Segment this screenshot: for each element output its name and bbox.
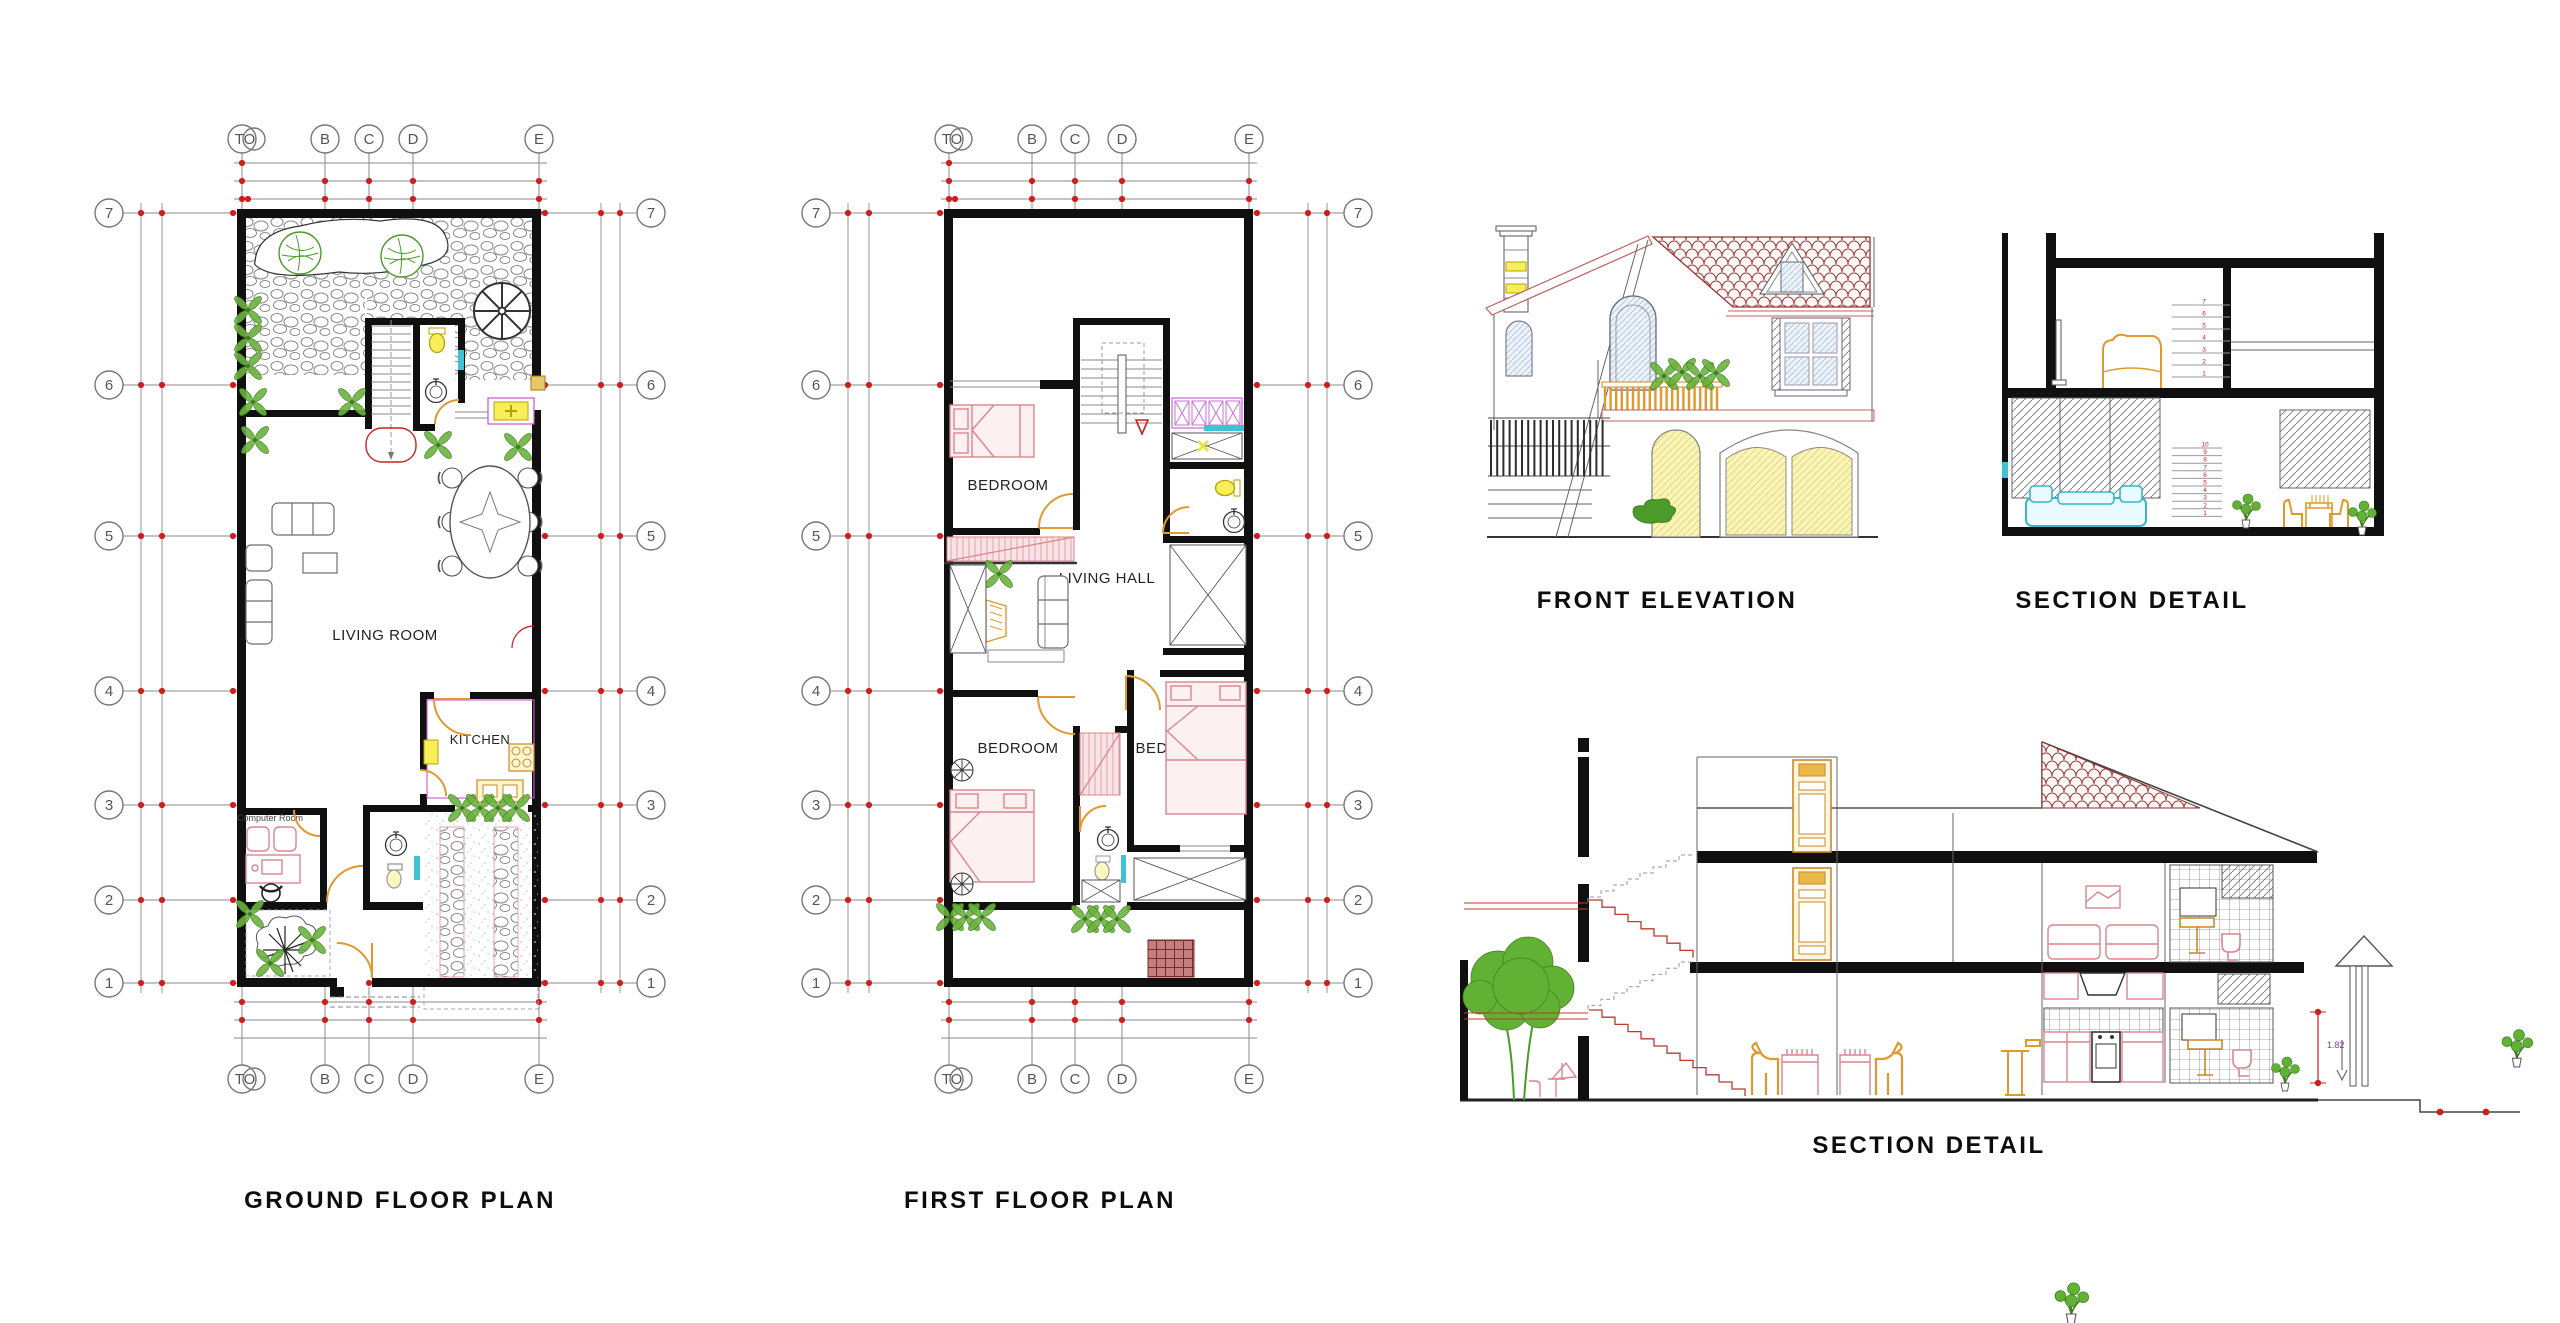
water-tank-tower <box>2336 936 2392 1086</box>
counter-block <box>424 740 438 764</box>
plant-icon <box>2502 1030 2533 1067</box>
grid-bubble: C <box>1061 125 1089 153</box>
grid-bubble-label: 3 <box>647 797 655 814</box>
door-arc <box>420 770 446 796</box>
grid-bubble: 3 <box>802 791 830 819</box>
plant-icon <box>2233 494 2261 528</box>
grid-bubble: 3 <box>95 791 123 819</box>
grid-bubble: 2 <box>95 886 123 914</box>
stair-step-number: 9 <box>2203 449 2207 456</box>
window-4pane <box>1772 318 1850 396</box>
entry-step <box>330 987 344 997</box>
grid-bubble: B <box>311 1065 339 1093</box>
floor-band <box>1602 410 1874 421</box>
stove-icon <box>509 744 534 771</box>
arched-window <box>1506 321 1532 376</box>
ceiling-fan-icon <box>951 759 973 781</box>
grid-bubble: 1 <box>637 969 665 997</box>
room-label: BEDROOM <box>977 740 1058 757</box>
tiled-roof <box>2042 742 2200 808</box>
toilet-icon <box>387 864 402 888</box>
arched-window <box>1610 296 1656 390</box>
stair-step-number: 10 <box>2201 442 2209 449</box>
entrance-door-arc <box>337 943 372 978</box>
grid-bubble-label: 1 <box>1354 975 1362 992</box>
side-gate-block <box>531 376 545 390</box>
stair-step-number: 6 <box>2202 311 2206 318</box>
grid-bubble-label: C <box>1070 131 1081 148</box>
sink-icon <box>386 832 407 856</box>
grid-bubble: 7 <box>95 199 123 227</box>
storage-box <box>1172 433 1242 459</box>
grid-bubble-label: 4 <box>812 683 820 700</box>
stairs-upper: 7654321 <box>2172 299 2230 378</box>
cabinet <box>986 600 1006 642</box>
grid-bubble-label: 3 <box>812 797 820 814</box>
first-floor-title: FIRST FLOOR PLAN <box>904 1187 1176 1214</box>
grid-bubble: E <box>1235 125 1263 153</box>
grid-bubble: E <box>525 1065 553 1093</box>
grid-bubble-label: E <box>1244 1071 1254 1088</box>
dressing-closet <box>1134 858 1246 900</box>
grid-bubble: B <box>1018 1065 1046 1093</box>
grid-bubble: C <box>355 125 383 153</box>
staircase <box>1081 343 1162 434</box>
balcony-tiles <box>1148 940 1194 977</box>
stair-step-number: 3 <box>2202 347 2206 354</box>
toilet-icon <box>429 328 445 353</box>
door-arc <box>1038 697 1075 734</box>
stair-step-number: 6 <box>2203 472 2207 479</box>
grid-bubble-label: C <box>1070 1071 1081 1088</box>
grid-bubble-label: 4 <box>105 683 113 700</box>
grid-bubble-label: 7 <box>812 205 820 222</box>
grid-bubble-label: 3 <box>1354 797 1362 814</box>
grid-bubble: 4 <box>802 677 830 705</box>
grid-bubble-label: 2 <box>105 892 113 909</box>
grid-bubble: TO <box>228 125 265 153</box>
console-table <box>488 398 534 424</box>
grid-bubble: 7 <box>637 199 665 227</box>
plant-icon <box>2272 1057 2300 1091</box>
stair-step-number: 8 <box>2203 457 2207 464</box>
kitchen-section <box>2044 973 2163 1082</box>
grid-bubble-label: C <box>364 1071 375 1088</box>
wardrobe <box>1172 398 1244 431</box>
room-lines <box>2231 342 2374 350</box>
stair-flights <box>1588 855 1745 1096</box>
first-floor-plan: BEDROOM LIVING HALL <box>934 209 1253 987</box>
front-elevation <box>1486 226 1878 537</box>
grid-bubble: D <box>399 125 427 153</box>
stair-step-number: 5 <box>2202 323 2206 330</box>
ground-step <box>2318 1100 2520 1112</box>
architectural-drawing-sheet: TOTOBBCCDDEE77665544332211TOTOBBCCDDEE77… <box>0 0 2560 1323</box>
grid-bubble-label: TO <box>235 131 256 148</box>
grid-bubble-label: 2 <box>1354 892 1362 909</box>
grid-bubble: 4 <box>95 677 123 705</box>
grid-bubble-label: 5 <box>1354 528 1362 545</box>
patio-set <box>1529 1063 1576 1097</box>
room-label: LIVING HALL <box>1059 570 1155 587</box>
stair-step-number: 7 <box>2202 299 2206 306</box>
grid-bubble: 7 <box>1344 199 1372 227</box>
garage-door <box>1720 430 1858 537</box>
grid-bubble-label: 3 <box>105 797 113 814</box>
grid-bubble: TO <box>935 125 972 153</box>
sofa <box>1038 576 1068 648</box>
grid-bubble: B <box>311 125 339 153</box>
room-label: BEDROOM <box>967 477 1048 494</box>
grid-bubble: TO <box>228 1065 265 1093</box>
grid-bubble: 5 <box>1344 522 1372 550</box>
bed <box>950 790 1034 882</box>
grid-bubble-label: 1 <box>105 975 113 992</box>
bathroom <box>1080 733 1126 902</box>
stair-step-number: 2 <box>2202 359 2206 366</box>
window <box>1180 846 1230 851</box>
stair-step-number: 4 <box>2203 487 2207 494</box>
closet-left <box>950 565 986 653</box>
grid-bubble-label: TO <box>942 131 963 148</box>
dining-set <box>2284 495 2348 527</box>
shrub <box>1633 499 1675 523</box>
grid-bubble-label: 6 <box>105 377 113 394</box>
grid-bubble: E <box>1235 1065 1263 1093</box>
stair-step-number: 7 <box>2203 464 2207 471</box>
door-arc <box>1039 494 1073 528</box>
section-detail-large: 1.82 <box>1460 738 2533 1323</box>
stair-step-number: 2 <box>2203 502 2207 509</box>
grid-bubble-label: 4 <box>1354 683 1362 700</box>
grid-bubble: C <box>1061 1065 1089 1093</box>
hatched-wall <box>2012 398 2160 498</box>
grid-bubble: C <box>355 1065 383 1093</box>
grid-bubble-label: C <box>364 131 375 148</box>
grid-bubble-label: 5 <box>812 528 820 545</box>
grid-bubble: 2 <box>802 886 830 914</box>
window-glass <box>414 856 420 880</box>
stone-paving <box>243 295 365 375</box>
grid-bubble-label: 2 <box>812 892 820 909</box>
front-elevation-title: FRONT ELEVATION <box>1537 587 1798 614</box>
window-glass <box>2002 462 2008 478</box>
grid-bubble: TO <box>935 1065 972 1093</box>
stair-step-number: 1 <box>2203 510 2207 517</box>
grid-bubble: 1 <box>802 969 830 997</box>
tree-icon <box>381 235 423 277</box>
stair-step-number: 3 <box>2203 495 2207 502</box>
window-glass <box>1204 425 1244 431</box>
grid-bubble-label: 7 <box>1354 205 1362 222</box>
hatched-wall <box>2280 410 2370 488</box>
door-arc-red <box>512 626 534 648</box>
bathroom-lower <box>2170 974 2273 1083</box>
grid-bubble: E <box>525 125 553 153</box>
grid-bubble: 3 <box>1344 791 1372 819</box>
grid-bubble-label: D <box>408 1071 419 1088</box>
armchair <box>2103 335 2161 388</box>
grid-bubble-label: B <box>1027 1071 1037 1088</box>
grid-bubble-label: B <box>1027 131 1037 148</box>
stair-step-number: 5 <box>2203 480 2207 487</box>
sink-icon <box>1224 509 1245 533</box>
grid-bubble: 3 <box>637 791 665 819</box>
grid-bubble: 7 <box>802 199 830 227</box>
fence <box>1488 418 1610 476</box>
stairs-lower: 10987654321 <box>2172 442 2222 517</box>
grid-bubble: 4 <box>1344 677 1372 705</box>
grid-bubble-label: E <box>1244 131 1254 148</box>
grid-bubble: 5 <box>95 522 123 550</box>
grid-bubble: D <box>1108 125 1136 153</box>
section-detail-top-title: SECTION DETAIL <box>2015 587 2248 614</box>
grid-bubble-label: 2 <box>647 892 655 909</box>
grid-bubble-label: E <box>534 1071 544 1088</box>
grid-bubble: 6 <box>1344 371 1372 399</box>
grid-bubble: B <box>1018 125 1046 153</box>
grid-bubble-label: 6 <box>647 377 655 394</box>
door-arc <box>327 866 363 902</box>
room-label: LIVING ROOM <box>332 627 438 644</box>
sofa-set <box>246 503 337 644</box>
grid-bubble-label: 7 <box>105 205 113 222</box>
toilet-icon <box>1216 480 1241 496</box>
grid-bubble-label: 4 <box>647 683 655 700</box>
grid-bubble: D <box>399 1065 427 1093</box>
closet-right <box>1170 545 1246 645</box>
stone-paving <box>367 295 455 318</box>
bathroom-upper <box>2170 865 2273 962</box>
grid-bubble-label: TO <box>235 1071 256 1088</box>
ground-floor-plan: LIVING ROOM KITCHEN Computer Room <box>232 209 545 1009</box>
sink-icon <box>426 379 447 403</box>
grid-bubble: D <box>1108 1065 1136 1093</box>
section-detail-small: 7654321 10987654321 <box>2002 233 2384 536</box>
bed <box>950 405 1034 457</box>
grid-bubble-label: B <box>320 1071 330 1088</box>
grid-bubble: 4 <box>637 677 665 705</box>
stair-step-number: 1 <box>2202 371 2206 378</box>
staircase <box>366 320 416 462</box>
dining-furniture <box>1752 1040 2040 1095</box>
grid-bubble-label: B <box>320 131 330 148</box>
grid-bubble-label: D <box>408 131 419 148</box>
bed <box>1166 682 1246 814</box>
grid-bubble-label: 1 <box>812 975 820 992</box>
grid-bubble: 5 <box>802 522 830 550</box>
grid-bubble-label: 5 <box>105 528 113 545</box>
ground-floor-title: GROUND FLOOR PLAN <box>244 1187 556 1214</box>
balcony <box>944 537 1077 563</box>
grid-bubble-label: D <box>1117 1071 1128 1088</box>
grid-bubble-label: 7 <box>647 205 655 222</box>
grid-bubble: 6 <box>95 371 123 399</box>
ceiling-fan-icon <box>951 873 973 895</box>
patio-umbrella <box>474 283 530 339</box>
hall-table <box>988 650 1064 662</box>
office-chair <box>260 884 282 902</box>
plant-icon <box>2055 1283 2089 1323</box>
steps <box>1488 490 1592 518</box>
stair-direction-arrow <box>1136 420 1148 434</box>
grid-bubble-label: 1 <box>647 975 655 992</box>
grid-bubble: 5 <box>637 522 665 550</box>
grid-bubble: 6 <box>802 371 830 399</box>
grid-bubble-label: TO <box>942 1071 963 1088</box>
tree-icon <box>279 232 321 274</box>
grid-bubble: 2 <box>1344 886 1372 914</box>
eave-lines <box>1726 311 1874 316</box>
grid-bubble: 2 <box>637 886 665 914</box>
computer-desk-set <box>246 827 300 883</box>
window-glass <box>458 350 464 370</box>
window <box>950 381 1040 387</box>
door-arc <box>434 699 470 735</box>
bedroom-furniture <box>2048 886 2158 959</box>
room-label: Computer Room <box>237 813 303 823</box>
stair-step-number: 4 <box>2202 335 2206 342</box>
section-detail-bottom-title: SECTION DETAIL <box>1812 1132 2045 1159</box>
tiled-roof <box>1653 237 1870 307</box>
grid-bubble-label: 6 <box>1354 377 1362 394</box>
grid-bubble-label: D <box>1117 131 1128 148</box>
grid-bubble-label: E <box>534 131 544 148</box>
grid-bubble: 6 <box>637 371 665 399</box>
dining-set <box>439 466 542 578</box>
grid-bubble-label: 5 <box>647 528 655 545</box>
grid-bubble: 1 <box>95 969 123 997</box>
grid-bubble: 1 <box>1344 969 1372 997</box>
sofa-cyan <box>2026 486 2146 526</box>
grid-bubble-label: 6 <box>812 377 820 394</box>
